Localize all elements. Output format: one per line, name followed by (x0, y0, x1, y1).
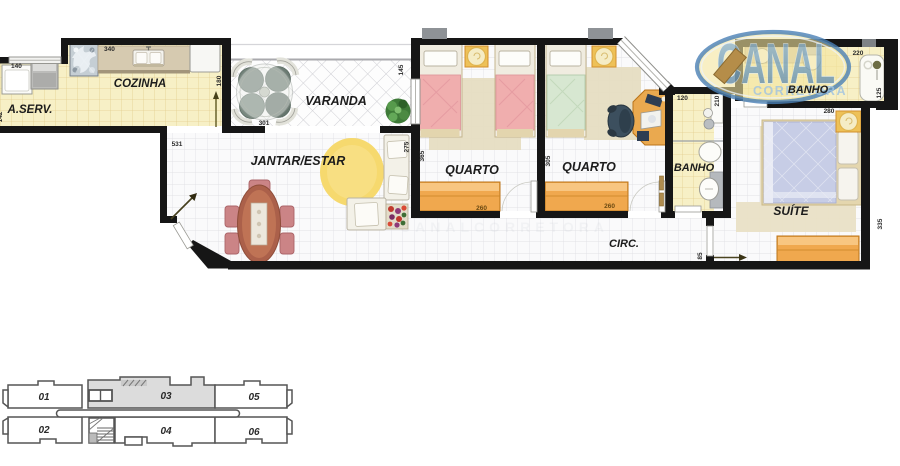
svg-text:CIRC.: CIRC. (609, 238, 639, 250)
svg-text:260: 260 (604, 203, 615, 210)
svg-text:SUÍTE: SUÍTE (773, 203, 809, 218)
svg-text:142: 142 (0, 111, 4, 122)
svg-text:210: 210 (714, 95, 721, 106)
svg-text:220: 220 (853, 50, 864, 57)
svg-text:QUARTO: QUARTO (562, 160, 616, 174)
svg-text:531: 531 (172, 141, 183, 148)
svg-text:A.SERV.: A.SERV. (7, 104, 53, 116)
svg-text:CANALCORRETORA: CANALCORRETORA (400, 219, 609, 235)
svg-text:06: 06 (248, 427, 260, 438)
svg-text:260: 260 (476, 205, 487, 212)
svg-text:275: 275 (404, 141, 411, 152)
svg-text:QUARTO: QUARTO (445, 163, 499, 177)
svg-text:305: 305 (545, 155, 552, 166)
svg-text:85: 85 (697, 252, 704, 260)
svg-text:140: 140 (11, 63, 22, 70)
svg-text:02: 02 (38, 425, 50, 436)
svg-text:180: 180 (216, 75, 223, 86)
svg-text:301: 301 (259, 120, 270, 127)
svg-text:VARANDA: VARANDA (305, 94, 367, 108)
svg-text:335: 335 (877, 218, 884, 229)
svg-text:120: 120 (677, 95, 688, 102)
svg-text:145: 145 (398, 64, 405, 75)
svg-text:365: 365 (419, 150, 426, 161)
svg-text:340: 340 (104, 46, 115, 53)
svg-text:BANHO: BANHO (788, 84, 829, 96)
svg-text:01: 01 (38, 392, 50, 403)
svg-text:03: 03 (160, 391, 172, 402)
svg-text:JANTAR/ESTAR: JANTAR/ESTAR (251, 154, 346, 168)
svg-text:05: 05 (248, 392, 260, 403)
svg-text:BANHO: BANHO (674, 162, 715, 174)
svg-text:280: 280 (824, 108, 835, 115)
svg-text:COZINHA: COZINHA (114, 78, 166, 90)
svg-text:125: 125 (876, 87, 883, 98)
svg-text:04: 04 (160, 426, 172, 437)
